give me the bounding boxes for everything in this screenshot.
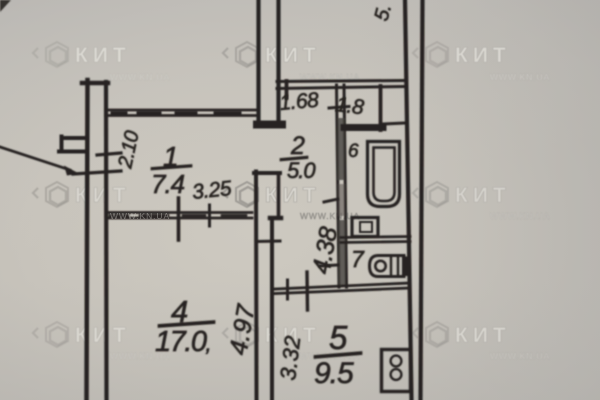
svg-text:1.68: 1.68 [278, 89, 320, 115]
svg-text:WWW.KN.UA: WWW.KN.UA [490, 351, 550, 361]
svg-text:КИТ: КИТ [75, 324, 131, 347]
svg-text:17.0,: 17.0, [155, 326, 210, 358]
svg-text:КИТ: КИТ [265, 44, 321, 67]
svg-text:КИТ: КИТ [455, 44, 511, 67]
svg-text:5: 5 [329, 319, 348, 356]
svg-text:7: 7 [351, 246, 365, 272]
svg-text:3.25: 3.25 [191, 177, 233, 204]
svg-text:WWW.KN.UA: WWW.KN.UA [110, 211, 170, 221]
svg-text:КИТ: КИТ [75, 44, 131, 67]
svg-text:КИТ: КИТ [75, 184, 131, 207]
svg-text:6: 6 [348, 141, 359, 162]
svg-text:WWW.KN.UA: WWW.KN.UA [490, 72, 550, 82]
svg-text:9.5: 9.5 [314, 357, 354, 390]
svg-text:WWW.KN.UA: WWW.KN.UA [110, 72, 170, 82]
svg-text:5.0: 5.0 [287, 158, 316, 183]
svg-text:7.4: 7.4 [151, 169, 185, 199]
svg-text:1.8: 1.8 [334, 93, 365, 119]
svg-text:КИТ: КИТ [455, 184, 511, 207]
svg-text:КИТ: КИТ [265, 184, 321, 207]
svg-text:2: 2 [290, 132, 305, 160]
svg-text:КИТ: КИТ [455, 324, 511, 347]
svg-text:WWW.KN.UA: WWW.KN.UA [490, 211, 550, 221]
